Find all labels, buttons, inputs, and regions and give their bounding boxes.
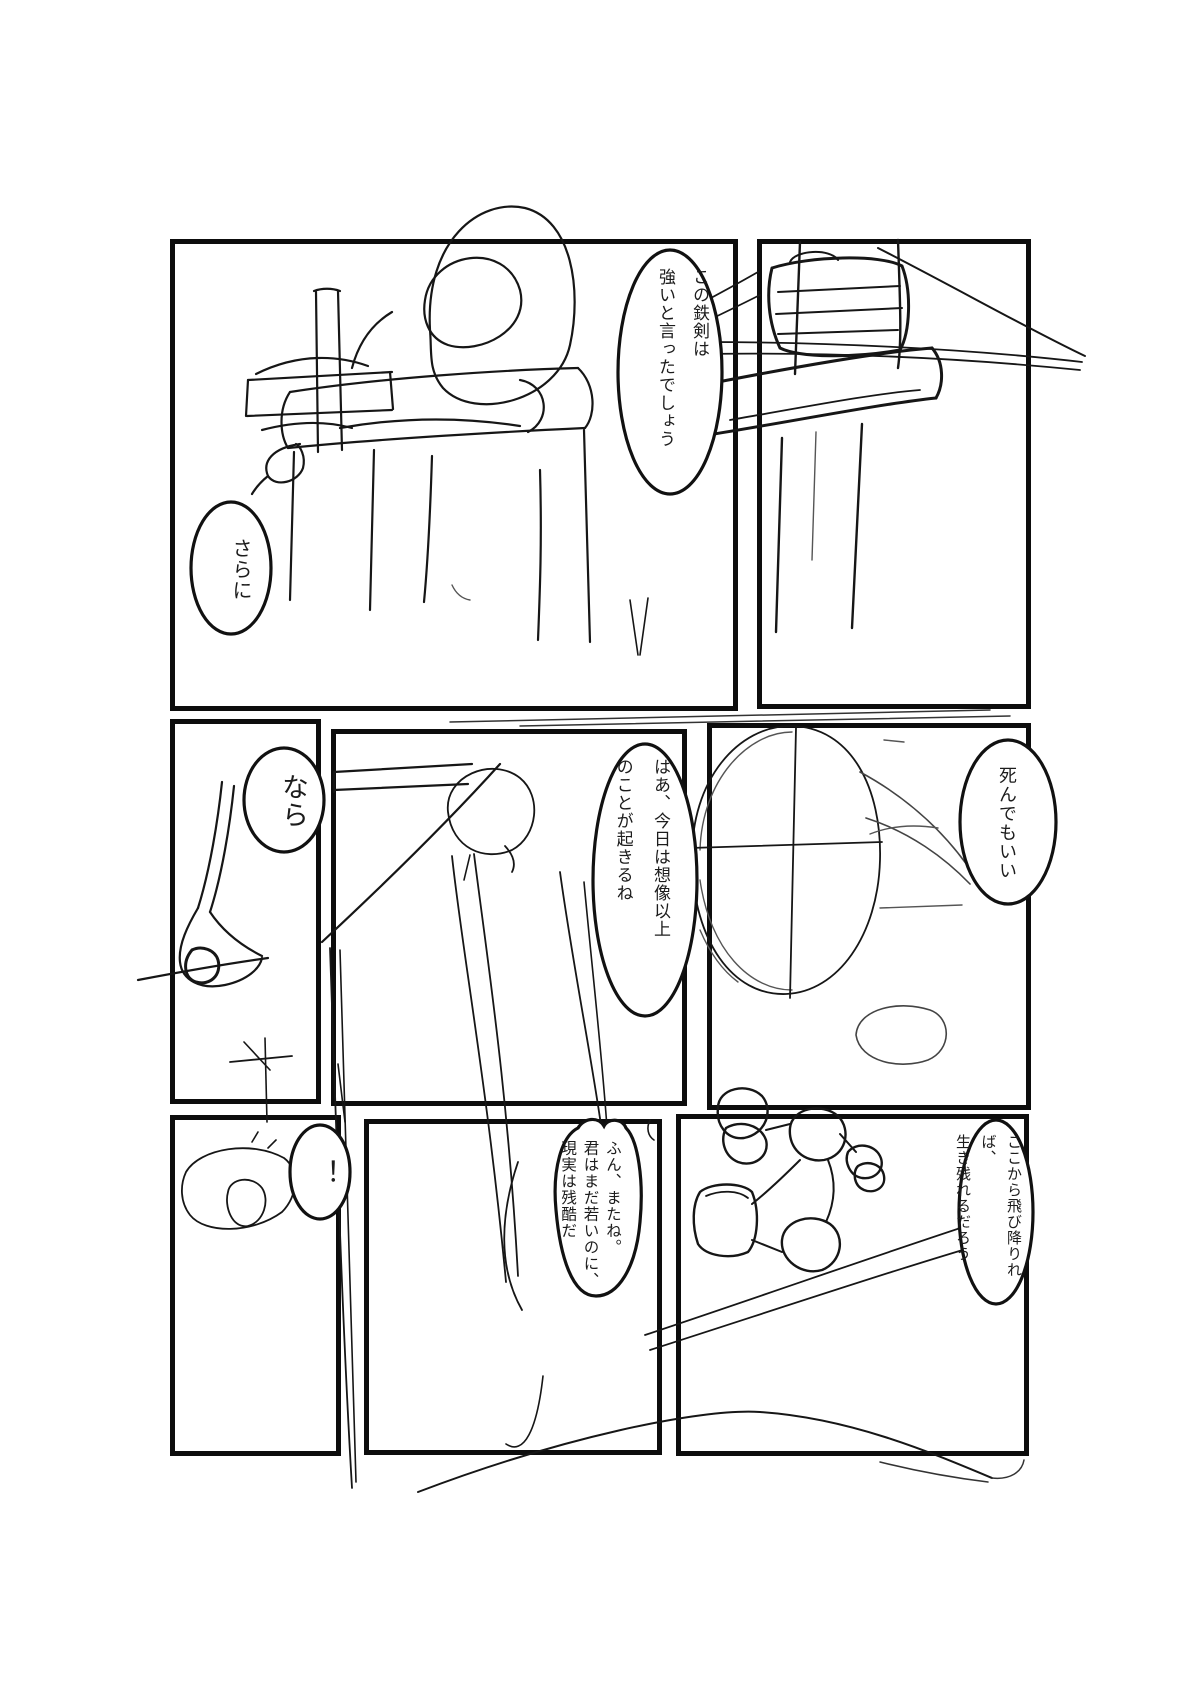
speech-bubble-6: ！ <box>302 1134 342 1212</box>
manga-page: この鉄剣は 強いと言ったでしょう さらに なら はあ、今日は想像以上 のことが起… <box>0 0 1200 1697</box>
speech-bubble-4: はあ、今日は想像以上 のことが起きるね <box>592 758 678 1008</box>
speech-bubble-2: さらに <box>200 510 256 628</box>
speech-bubble-8: ここから飛び降りれば、 生き残れるだろう <box>962 1134 1026 1304</box>
speech-bubble-5: 死んでもいい <box>960 748 1020 898</box>
speech-bubble-3: なら <box>258 756 310 846</box>
speech-bubble-7: ふん、またね。 君はまだ若いのに、 現実は残酷だ <box>552 1140 624 1290</box>
panel-top-right <box>757 239 1031 709</box>
speech-bubble-1: この鉄剣は 強いと言ったでしょう <box>628 268 716 483</box>
